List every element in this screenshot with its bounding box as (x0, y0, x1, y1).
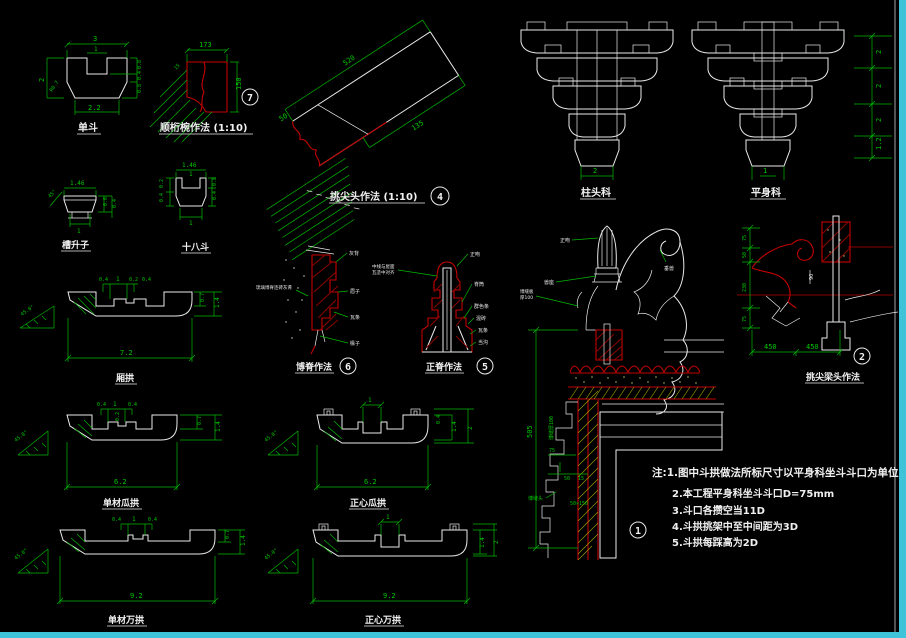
detail-label: 挑尖头作法 (1:10) (330, 190, 418, 203)
dim-text: 15 (578, 476, 584, 482)
dim-text: 75 (549, 448, 555, 454)
dim-text: 150 (235, 77, 243, 90)
note-line: 注:1.图中斗拱做法所标尺寸以平身科坐斗斗口为单位 (652, 466, 899, 479)
dim-text: 230 (742, 283, 748, 292)
dim-text: 50×150 (570, 501, 588, 507)
detail-label: 单斗 (78, 121, 98, 134)
leader-label: 脊筒 (474, 281, 484, 288)
dim-text: 0.4 (99, 277, 108, 283)
dim-text: 50 (742, 252, 748, 258)
dim-text: 0.7 (225, 530, 231, 539)
dim-text: 1.4 (214, 297, 221, 308)
detail-label: 平身科 (751, 186, 781, 199)
leader-label: 当沟 (478, 339, 488, 346)
dim-text: 2 (875, 84, 883, 88)
dim-text: 450 (764, 343, 777, 351)
dim-text: 2.2 (88, 104, 101, 112)
dim-text: 0.4 (97, 402, 106, 408)
dim-text: 0.4 (128, 402, 137, 408)
dim-text: 450 (806, 343, 819, 351)
leader-label: 兽座 (544, 279, 554, 286)
dim-text: 2 (875, 118, 883, 122)
leader-label: 瓦条 (478, 327, 488, 334)
dim-text: 6.2 (364, 478, 377, 486)
dim-text: 1.46 (182, 162, 197, 169)
dougong-detail-sheet: 3 1 2.2 2 R0.7 0.8 0.4 0.8 单斗 173 150 15… (0, 0, 906, 638)
detail-number: 1 (635, 526, 641, 537)
leader-label: 瓦垄中对齐 (372, 269, 395, 276)
detail-number: 6 (345, 362, 351, 373)
leader-label: 椽子 (350, 340, 360, 347)
cad-drawing-canvas: 3 1 2.2 2 R0.7 0.8 0.4 0.8 单斗 173 150 15… (0, 0, 906, 638)
dim-text: 1.4 (240, 535, 247, 546)
leader-label: 中线与屋面 (372, 263, 395, 270)
dim-text: 9.2 (383, 592, 396, 600)
dim-text: 0.4 (137, 71, 143, 80)
detail-label: 十八斗 (182, 241, 209, 253)
dim-text: 50 (564, 476, 570, 482)
dim-text: 0.8 (212, 177, 218, 186)
leader-label: 厚100 (520, 295, 533, 301)
detail-label: 顺桁椀作法 (1:10) (160, 121, 248, 134)
dim-text: 75 (742, 235, 748, 241)
dim-text: 6.2 (114, 478, 127, 486)
dim-text: 0.4 (436, 415, 442, 424)
leader-label: 混砖 (476, 315, 486, 322)
dim-text: 7.2 (120, 349, 133, 357)
dim-text: 1.2 (875, 137, 883, 150)
dim-text: 90 (809, 274, 815, 280)
detail-number: 4 (437, 192, 443, 203)
dim-text: 0.7 (197, 416, 203, 425)
dim-text: 0.4 (148, 517, 157, 523)
dim-text: 2 (593, 167, 597, 175)
detail-label: 挑尖梁头作法 (806, 371, 860, 383)
dim-text: 1 (386, 514, 390, 521)
leader-label: 正吻 (470, 251, 480, 258)
dim-text: 0.2 (159, 179, 165, 188)
dim-text: 0.4 (112, 199, 118, 208)
window-edge-bottom (0, 632, 906, 638)
dim-text: 2 (875, 50, 883, 54)
dim-text: 0.2 (115, 412, 121, 421)
detail-label: 正心万拱 (365, 614, 401, 626)
leader-label: 博缝头 (528, 495, 543, 502)
dim-text: 1.4 (451, 421, 458, 432)
dim-text: 0.4 (112, 517, 121, 523)
dim-text: 1 (189, 220, 193, 227)
leader-label: 瓦条 (350, 314, 360, 321)
dim-text: 博缝厚100 (548, 416, 555, 440)
dim-text: 1.4 (479, 537, 486, 548)
leader-label: 眉子 (350, 288, 360, 295)
leader-label: 群色条 (474, 303, 489, 310)
dim-text: 1 (189, 171, 193, 178)
detail-number: 7 (247, 93, 253, 104)
dim-text: 75 (742, 316, 748, 322)
dim-text: 3 (93, 35, 97, 43)
dim-text: 1 (113, 401, 117, 408)
dim-text: 9.2 (130, 592, 143, 600)
dim-text: 0.4 (159, 193, 165, 202)
note-line: 5.斗拱每踩高为2D (672, 536, 758, 549)
note-line: 4.斗拱挑架中至中间距为3D (672, 520, 798, 533)
detail-label: 厢拱 (116, 372, 134, 384)
dim-text: 0.8 (137, 84, 143, 93)
detail-label: 正心瓜拱 (350, 497, 386, 509)
dim-text: 2 (467, 426, 474, 430)
detail-label: 正脊作法 (426, 361, 462, 373)
dim-text: 1 (77, 228, 81, 235)
detail-label: 槽升子 (62, 239, 89, 251)
dim-text: 0.4 (142, 277, 151, 283)
dim-text: 1 (132, 516, 136, 523)
detail-number: 2 (859, 352, 865, 363)
leader-label: 琉璃博脊连砖灰背 (256, 284, 292, 291)
dim-text: 1 (368, 397, 372, 404)
leader-label: 正吻 (560, 237, 570, 244)
dim-text: 1 (94, 46, 98, 53)
dim-text: 0.6 (103, 197, 109, 206)
detail-label: 柱头科 (581, 186, 611, 199)
dim-text: 2 (38, 78, 46, 82)
leader-label: 博缝板 (520, 288, 534, 295)
dim-text: 1.46 (70, 180, 85, 187)
window-edge-right (899, 0, 906, 638)
dim-text: 0.2 (129, 277, 138, 283)
leader-label: 灰背 (349, 250, 359, 257)
dim-text: 1 (763, 167, 767, 175)
detail-label: 博脊作法 (296, 361, 332, 373)
leader-label: 垂兽 (664, 265, 674, 272)
dim-text: 0.7 (200, 293, 206, 302)
dim-text: 173 (199, 41, 212, 49)
detail-label: 单材瓜拱 (103, 497, 139, 509)
dim-text: 1 (116, 276, 120, 283)
detail-number: 5 (482, 362, 488, 373)
dim-text: 0.4 (212, 191, 218, 200)
note-line: 2.本工程平身科坐斗斗口D=75mm (672, 487, 834, 500)
dim-text: 0.8 (137, 60, 143, 69)
dim-text: 505 (526, 425, 534, 438)
dim-text: 1.4 (215, 421, 222, 432)
dim-text: 2 (493, 540, 500, 544)
detail-label: 单材万拱 (108, 614, 144, 626)
note-line: 3.斗口各攒空当11D (672, 504, 765, 517)
